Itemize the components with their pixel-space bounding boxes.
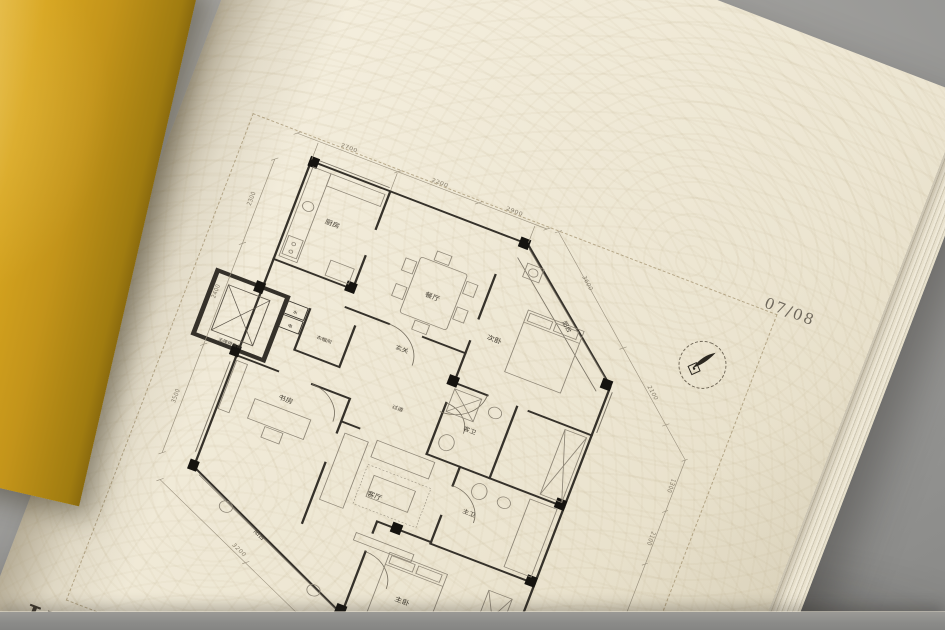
- dim-label: 2900: [505, 206, 523, 217]
- dim-label: 3600: [580, 275, 593, 291]
- room-label-cloakroom: 衣帽间: [315, 334, 332, 346]
- dim-label: 2700: [340, 143, 358, 154]
- room-label-shaft-electric: 电: [287, 322, 294, 330]
- book-photo-scene: 07/08: [0, 0, 945, 630]
- room-label-study: 书房: [277, 393, 294, 406]
- room-label-bedroom2: 次卧: [486, 333, 503, 346]
- room-label-kitchen: 厨房: [324, 217, 341, 230]
- dim-label: 3500: [171, 388, 182, 404]
- room-label-dining: 餐厅: [424, 290, 441, 303]
- dim-label: 2100: [645, 530, 656, 546]
- room-label-master-bedroom: 主卧: [393, 595, 410, 608]
- floor-plan: 2700 2200 2900 3600 2100 1300 2100 5000 …: [87, 107, 752, 630]
- table-surface: [0, 612, 945, 630]
- room-label-hallway: 过道: [391, 403, 405, 414]
- room-label-guest-bath: 客卫: [462, 425, 477, 437]
- dim-label: 2300: [247, 191, 258, 207]
- dim-label: 2200: [431, 178, 449, 189]
- dim-label: 2100: [645, 385, 658, 401]
- furniture: [167, 166, 642, 630]
- structural-columns: [156, 154, 650, 630]
- room-label-shaft-water: 水: [292, 309, 299, 317]
- room-label-foyer: 玄关: [394, 344, 409, 356]
- plan-walls: [119, 144, 648, 630]
- windows-rails: [160, 157, 652, 630]
- dim-label: 1300: [665, 477, 676, 493]
- room-label-living: 客厅: [366, 489, 383, 502]
